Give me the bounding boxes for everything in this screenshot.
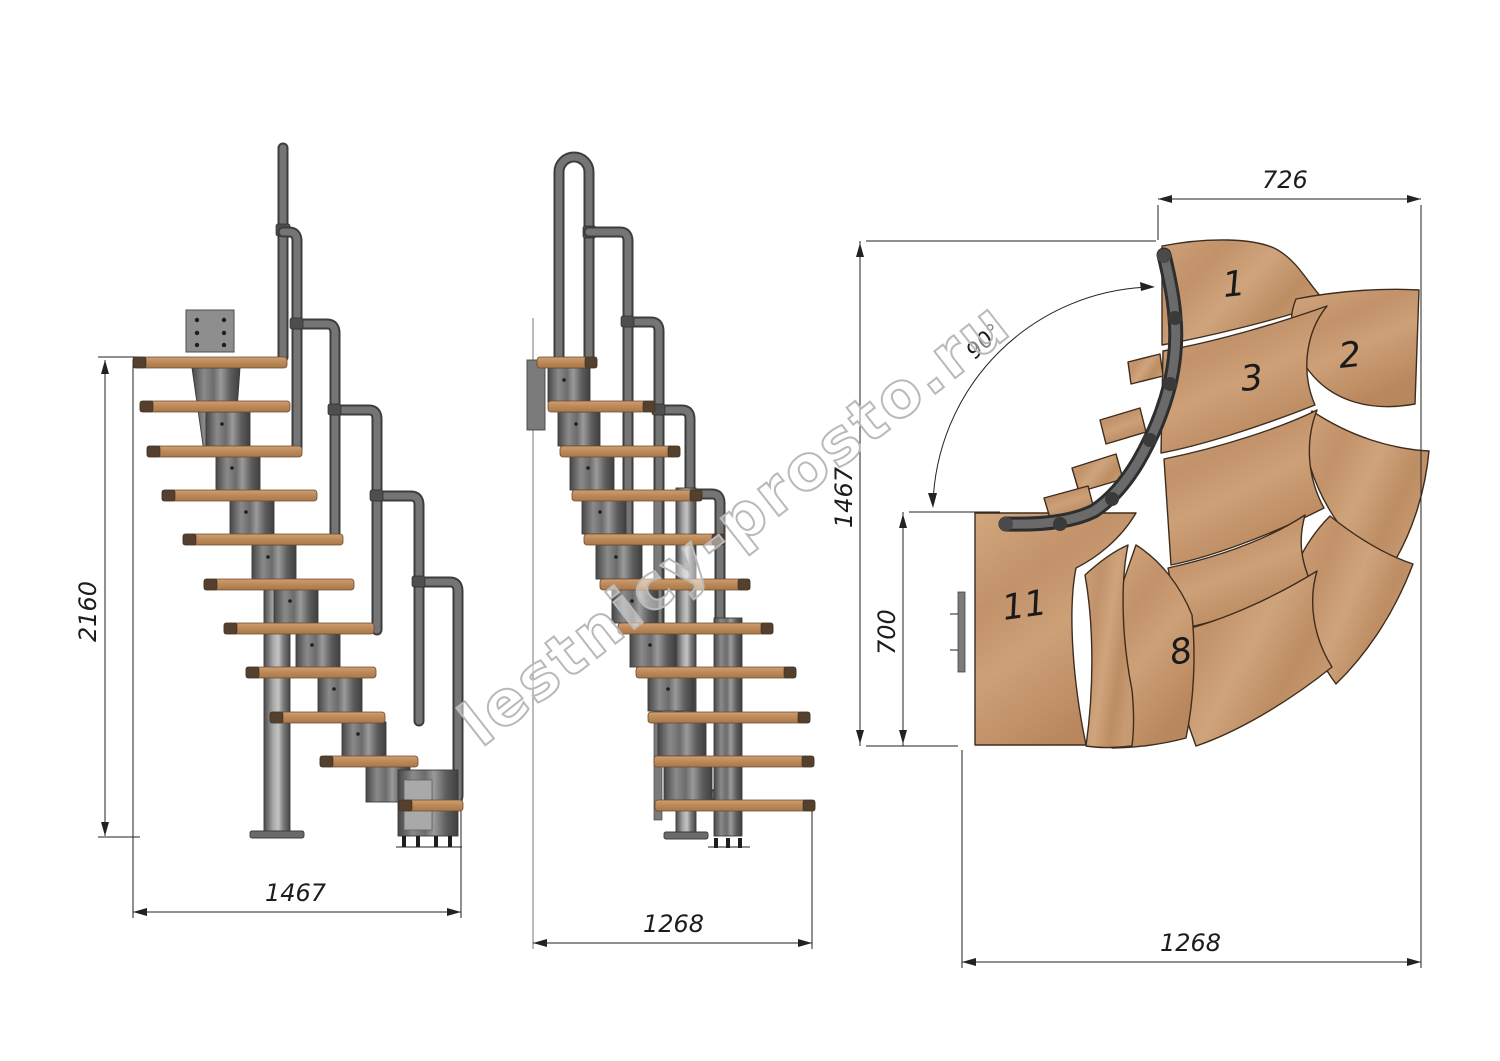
dim-label-1268-plan: 1268 — [1160, 929, 1221, 957]
dim-label-2160: 2160 — [74, 581, 102, 642]
dim-label-1268-b: 1268 — [643, 910, 704, 938]
handrail — [276, 148, 458, 804]
plan-tread-end — [1100, 408, 1146, 444]
dimension-1268-b: 1268 — [533, 800, 812, 949]
side-elevation-a: 2160 1467 — [74, 148, 463, 918]
plan-wall-bracket — [950, 592, 965, 672]
wall-mount-plate — [527, 360, 545, 430]
dim-label-1467-a: 1467 — [265, 879, 327, 907]
dimension-2160: 2160 — [74, 357, 140, 837]
plan-view: 726 1467 700 1268 — [830, 166, 1429, 968]
staircase-drawing: 2160 1467 — [0, 0, 1500, 1061]
step-number-2: 2 — [1337, 335, 1363, 377]
step-number-11: 11 — [1000, 583, 1050, 629]
step-number-3: 3 — [1239, 358, 1265, 400]
dim-label-726: 726 — [1262, 166, 1308, 194]
dimension-1268-plan: 1268 — [962, 750, 1421, 968]
step-number-1: 1 — [1221, 264, 1247, 306]
dim-label-700: 700 — [873, 609, 901, 655]
plan-treads — [975, 240, 1429, 748]
plan-tread-end — [1128, 354, 1163, 384]
